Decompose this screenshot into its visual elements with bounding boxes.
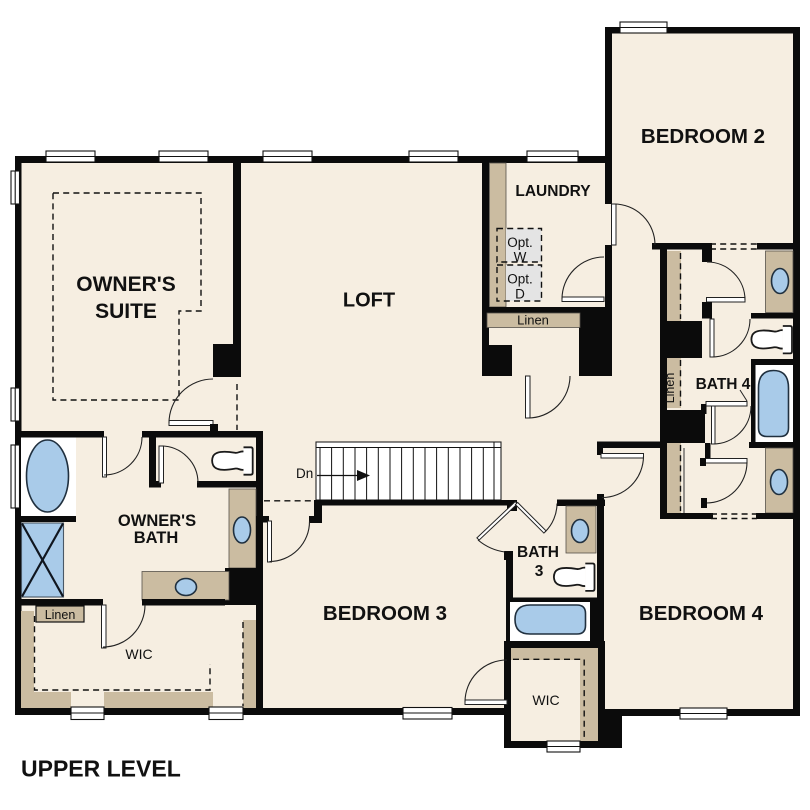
svg-text:BEDROOM 3: BEDROOM 3: [323, 602, 447, 625]
svg-text:BATH 4: BATH 4: [696, 376, 751, 393]
svg-text:LAUNDRY: LAUNDRY: [515, 183, 591, 200]
svg-text:Opt.: Opt.: [507, 235, 533, 250]
svg-text:BATH: BATH: [134, 529, 179, 547]
svg-text:D: D: [515, 287, 525, 302]
svg-text:Linen: Linen: [663, 373, 677, 404]
svg-text:SUITE: SUITE: [95, 300, 157, 323]
svg-text:UPPER LEVEL: UPPER LEVEL: [21, 756, 181, 782]
svg-text:WIC: WIC: [125, 646, 152, 662]
svg-text:Linen: Linen: [45, 608, 76, 622]
svg-text:BEDROOM 4: BEDROOM 4: [639, 602, 764, 625]
svg-text:WIC: WIC: [532, 692, 559, 708]
svg-text:LOFT: LOFT: [343, 290, 395, 312]
svg-text:3: 3: [535, 563, 544, 580]
svg-text:W: W: [514, 250, 527, 265]
svg-text:Dn: Dn: [296, 466, 313, 481]
svg-text:OWNER'S: OWNER'S: [76, 273, 176, 296]
svg-text:Opt.: Opt.: [507, 272, 533, 287]
svg-text:BEDROOM 2: BEDROOM 2: [641, 125, 765, 148]
svg-text:OWNER'S: OWNER'S: [118, 512, 196, 530]
svg-text:BATH: BATH: [517, 544, 559, 561]
svg-text:Linen: Linen: [517, 313, 549, 328]
